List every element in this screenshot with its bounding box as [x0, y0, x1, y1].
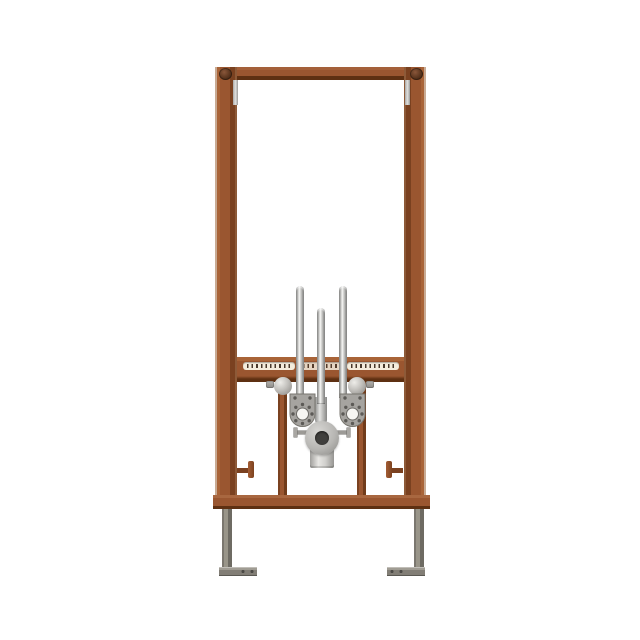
corner-bolt-left-icon: [219, 68, 232, 80]
threaded-rod-left: [296, 286, 304, 398]
inlet-rod-middle: [317, 308, 325, 404]
foot-leg-left: [222, 509, 232, 569]
foot-plate-right: [387, 567, 425, 576]
mounting-plate-right: [338, 393, 367, 431]
left-upright-rail: [215, 67, 237, 509]
foot-plate-left: [219, 567, 257, 576]
top-crossbar: [215, 67, 426, 80]
rail-slot-left: [243, 362, 295, 370]
locking-bolt-right: [366, 381, 374, 388]
product-image: [0, 0, 640, 640]
bottom-crossbar: [213, 495, 430, 509]
rail-slot-right: [347, 362, 399, 370]
depth-knob-left: [248, 461, 254, 478]
drain-outlet: [305, 421, 339, 455]
wall-anchor-slot-right: [405, 80, 410, 105]
threaded-rod-right: [339, 286, 347, 398]
carriage-bar-left: [278, 378, 287, 496]
depth-knob-right: [386, 461, 392, 478]
depth-knob-right-stem: [391, 468, 403, 473]
locking-bolt-left: [266, 381, 274, 388]
right-upright-rail: [404, 67, 426, 509]
wall-anchor-slot-left: [233, 80, 238, 105]
corner-bolt-right-icon: [410, 68, 423, 80]
foot-leg-right: [414, 509, 424, 569]
